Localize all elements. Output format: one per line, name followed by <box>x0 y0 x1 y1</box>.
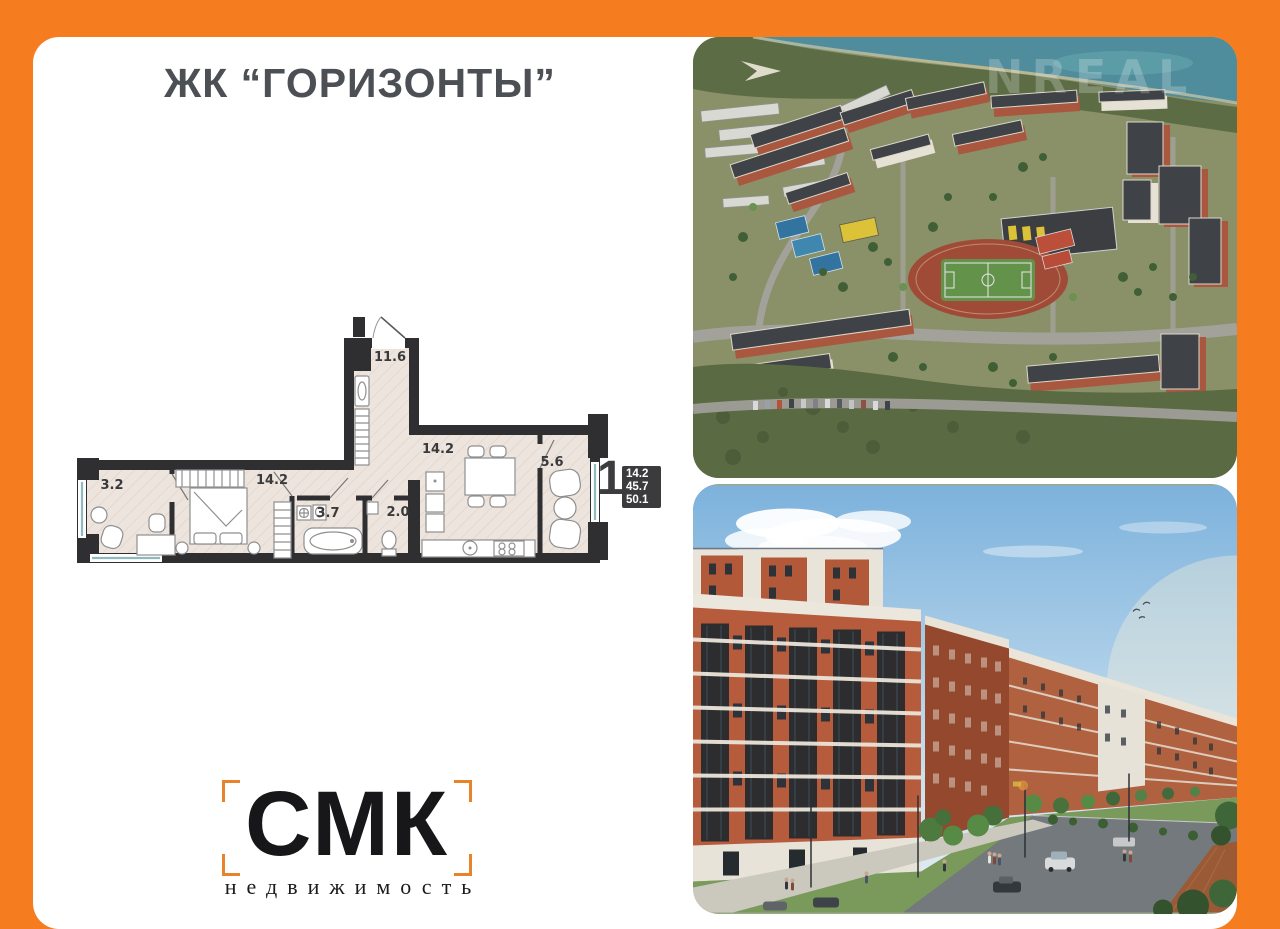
room-label-loggia-2: 5.6 <box>540 455 563 470</box>
agency-tagline: недвижимость <box>88 874 608 900</box>
photo-watermark: NREAL <box>985 50 1195 104</box>
room-label-loggia: 3.2 <box>100 478 123 493</box>
living-area: 14.2 <box>626 468 661 481</box>
total-area: 50.1 <box>626 494 661 507</box>
agency-name: СМК <box>222 774 472 874</box>
room-label-kitchen: 14.2 <box>422 442 454 457</box>
street-render <box>693 484 1237 914</box>
rooms-count: 1 <box>597 455 624 503</box>
floor-plan-drawing: 3.2 14.2 11.6 3.7 2.0 14.2 5.6 <box>76 312 608 570</box>
room-label-bedroom: 14.2 <box>256 473 288 488</box>
aerial-photo: NREAL <box>693 37 1237 478</box>
room-label-bathroom: 3.7 <box>316 506 339 521</box>
agency-logo: СМК <box>222 778 472 878</box>
street-photo <box>693 484 1237 914</box>
aerial-render: NREAL <box>693 37 1237 478</box>
apartment-area: 45.7 <box>626 481 661 494</box>
area-badge: 14.2 45.7 50.1 <box>622 466 661 508</box>
room-label-hall: 11.6 <box>374 350 406 365</box>
room-label-wc: 2.0 <box>386 505 409 520</box>
page-title: ЖК “ГОРИЗОНТЫ” <box>40 60 680 107</box>
floor-plan: 3.2 14.2 11.6 3.7 2.0 14.2 5.6 <box>76 312 608 570</box>
